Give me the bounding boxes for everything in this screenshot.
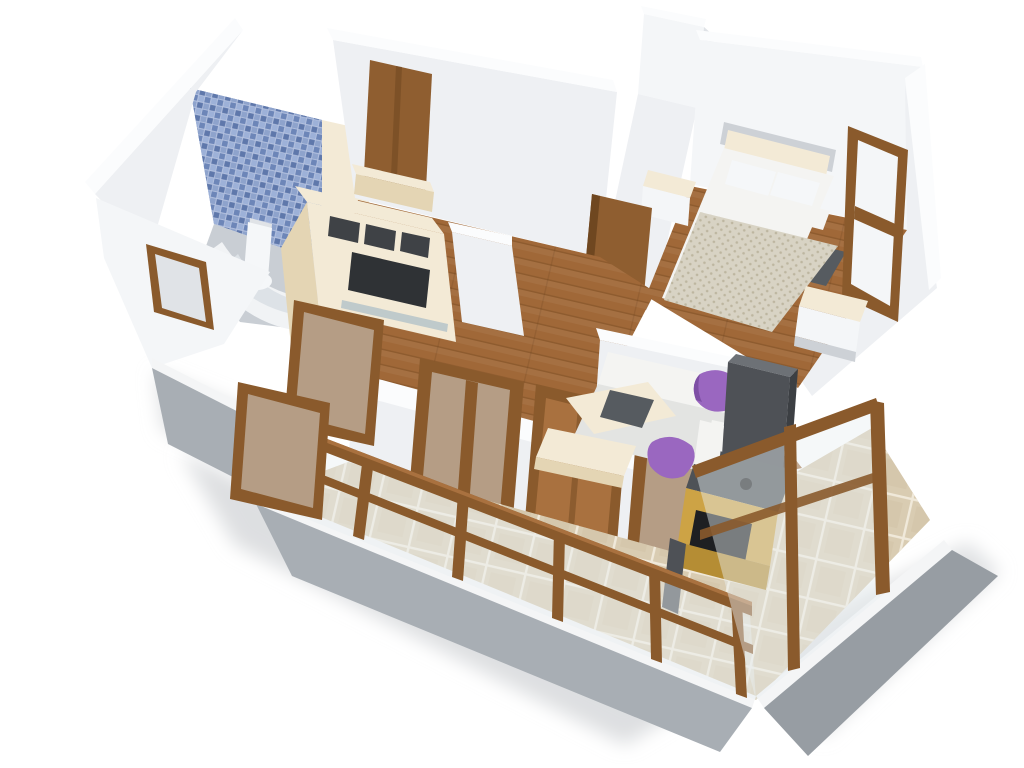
floor-plan-page: [0, 0, 1024, 768]
floor-plan-render: [0, 0, 1024, 768]
notch-wall-face: [638, 14, 704, 108]
corner-frame-lower-glass: [241, 394, 320, 508]
